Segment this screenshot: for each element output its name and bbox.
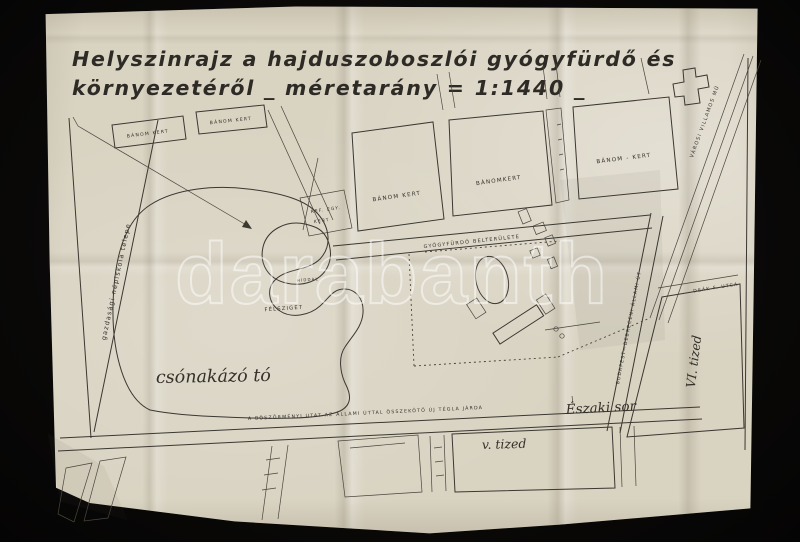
- banom-kert-small-1-label: BÁNOM KERT: [126, 127, 169, 139]
- church-garden-label-1: REF. EGY.: [310, 205, 341, 215]
- banom-kert-a-label: BÁNOM KERT: [372, 190, 421, 204]
- banom-kert-b-label: BÁNOMKERT: [476, 174, 523, 187]
- garden-block-b: [449, 111, 552, 216]
- deak-street-label: DEÁK F. UTCA: [693, 281, 739, 295]
- map-title-line2: környezetéről _ méretarány = 1:1440 _: [72, 76, 586, 100]
- photographed-map-scene: Helyszinrajz a hajduszoboszlói gyógyfürd…: [0, 0, 800, 542]
- right-border-line: [745, 58, 748, 450]
- tramway-lines: [650, 54, 761, 323]
- garden-block-a: [352, 122, 444, 231]
- v-tized-block: [452, 426, 636, 492]
- cross-building: [673, 68, 709, 105]
- v-tized-label: v. tized: [482, 436, 527, 452]
- vi-tized-label: VI. tized: [683, 334, 704, 388]
- banom-kert-c-label: BÁNOM - KERT: [596, 152, 652, 166]
- tramway-label: VÁROSI VILLAMOS MŰ: [688, 84, 721, 159]
- eszaki-sor-label: Északi sor: [564, 398, 638, 418]
- church-garden-label-2: KERT: [314, 217, 331, 225]
- diagonal-lane: [268, 106, 333, 224]
- watermark-text: darabanth: [175, 226, 609, 322]
- boating-lake-label: csónakázó tó: [156, 366, 271, 388]
- bottom-middle-block: [338, 435, 446, 497]
- banom-kert-small-2-label: BÁNOM KERT: [209, 115, 252, 126]
- map-drawing: Helyszinrajz a hajduszoboszlói gyógyfürd…: [0, 0, 800, 542]
- bottom-left-parcels: [58, 445, 288, 522]
- map-title-line1: Helyszinrajz a hajduszoboszlói gyógyfürd…: [72, 47, 676, 71]
